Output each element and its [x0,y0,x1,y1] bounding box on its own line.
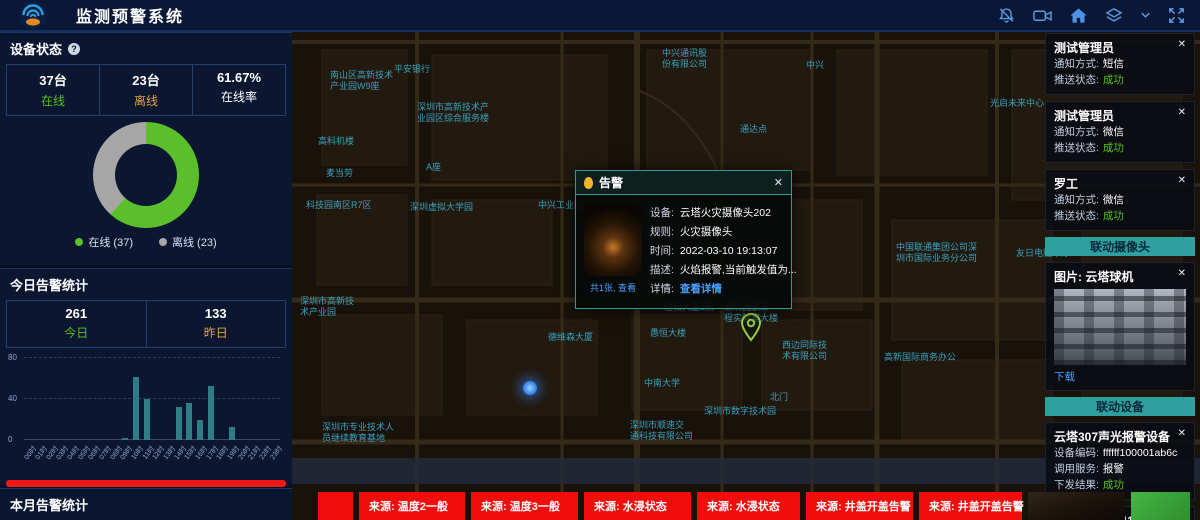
alert-snapshot-image[interactable] [584,204,642,276]
legend-dot-icon [159,238,167,246]
alert-tile[interactable]: 来源: 水浸状态 [584,492,691,520]
close-icon[interactable]: ✕ [1178,268,1186,279]
card-row-value: ffffff100001ab6c [1103,447,1177,459]
alert-popup-body: 共1张, 查看 设备:云塔火灾摄像头202规则:火灾摄像头时间:2022-03-… [576,195,791,308]
stat-value: 61.67% [193,70,285,85]
popup-rows: 设备:云塔火灾摄像头202规则:火灾摄像头时间:2022-03-10 19:13… [650,204,797,299]
stat-value: 261 [7,306,146,321]
card-row-value: 短信 [1103,58,1124,70]
card-row: 通知方式:微信 [1054,125,1186,140]
stat-cell: 23台离线 [99,65,192,115]
stat-label: 今日 [7,324,146,341]
close-icon[interactable]: ✕ [774,176,783,189]
linkage-band-button[interactable]: 联动摄像头 [1045,237,1195,256]
notify-card: 罗工✕通知方式:微信推送状态:成功 [1045,169,1195,231]
notify-card: 测试管理员✕通知方式:微信推送状态:成功 [1045,101,1195,163]
map-place-label: 中国联通集团公司深 圳市国际业务分公司 [896,242,977,264]
map-device-dot-marker[interactable] [523,381,537,395]
bottom-alert-bar: 来源: 温度2一般来源: 温度3一般来源: 水浸状态来源: 水浸状态来源: 井盖… [292,492,1200,520]
card-title: 测试管理员 [1054,107,1114,124]
map-place-label: 高科机楼 [318,136,354,147]
card-title: 云塔307声光报警设备 [1054,428,1170,445]
card-title: 图片: 云塔球机 [1054,268,1133,285]
card-row: 推送状态:成功 [1054,73,1186,88]
alert-tile[interactable]: 来源: 水浸状态 [697,492,800,520]
alert-tile[interactable] [1028,492,1125,520]
bar [197,420,203,441]
map-place-label: 麦当劳 [326,168,353,179]
popup-row-label: 描述: [650,261,674,280]
map-place-label: 中南大学 [644,378,680,389]
alert-tile-label: 来源: 井盖开盖告警 [919,498,1024,514]
map-place-label: 德维森大厦 [548,332,593,343]
alert-tile-label: 来源: 温度2一般 [359,498,448,514]
grid-line [24,357,280,358]
bar [122,438,128,440]
today-alarm-panel: 今日告警统计 261今日133昨日 04080 00时01时02时03时04时0… [0,268,292,485]
download-link[interactable]: 下载 [1054,369,1075,384]
bar [186,403,192,440]
device-donut-chart [93,122,199,228]
close-icon[interactable]: ✕ [1178,107,1186,118]
map-pin-marker[interactable] [739,312,763,345]
map-place-label: 平安银行 [394,64,430,75]
device-status-header: 设备状态 ? [0,33,292,62]
chevron-down-icon[interactable] [1140,10,1151,20]
app-title: 监测预警系统 [76,3,184,27]
alarm-lamp-icon [584,177,593,189]
card-row: 调用服务:报警 [1054,462,1186,477]
stat-cell: 261今日 [7,301,146,347]
alert-feed: 测试管理员✕通知方式:短信推送状态:成功测试管理员✕通知方式:微信推送状态:成功… [1045,33,1195,520]
video-camera-icon[interactable] [1032,6,1053,25]
alert-tile-label: 来源: 温度3一般 [471,498,560,514]
popup-row: 描述:火焰报警,当前触发值为... [650,261,797,280]
stat-cell: 61.67%在线率 [192,65,285,115]
panel-title: 今日告警统计 [10,275,88,294]
close-icon[interactable]: ✕ [1178,39,1186,50]
stat-label: 在线 [7,92,99,109]
panel-title: 设备状态 [10,39,62,58]
y-tick-label: 80 [8,353,17,362]
bar [208,386,214,440]
card-title: 罗工 [1054,175,1078,192]
popup-row-label: 规则: [650,223,674,242]
card-row: 下发结果:成功 [1054,478,1186,493]
close-icon[interactable]: ✕ [1178,428,1186,439]
alert-tile[interactable]: 来源: 井盖开盖告警 [806,492,913,520]
map-place-label: 深圳市高新技 术产业园 [300,296,354,318]
popup-row: 设备:云塔火灾摄像头202 [650,204,797,223]
card-row-value: 成功 [1103,74,1124,86]
alert-tile[interactable] [318,492,353,520]
map-place-label: 北门 [770,392,788,403]
stat-value: 133 [147,306,286,321]
popup-row-value: 2022-03-10 19:13:07 [680,242,778,261]
map-place-label: 深圳市专业技术人 员继续教育基地 [322,422,394,444]
stat-value: 23台 [100,70,192,89]
month-alarm-panel: 本月告警统计 7631146 [0,488,292,520]
notify-card: 测试管理员✕通知方式:短信推送状态:成功 [1045,33,1195,95]
popup-row-value: 火焰报警,当前触发值为... [680,261,797,280]
monitoring-dashboard: 监测预警系统 [0,0,1200,520]
left-sidebar: 设备状态 ? 37台在线23台离线61.67%在线率 在线 (37)离线 (23… [0,32,292,520]
bar [144,399,150,440]
alert-tile-label: 来源: 水浸状态 [584,498,667,514]
card-row-value: 成功 [1103,210,1124,222]
card-row-value: 微信 [1103,194,1124,206]
popup-row: 详情:查看详情 [650,280,797,299]
card-row-value: 微信 [1103,126,1124,138]
alert-tile[interactable]: 来源: 温度2一般 [359,492,465,520]
bar [176,407,182,440]
card-row: 设备编码:ffffff100001ab6c [1054,446,1186,461]
map-place-label: 通达点 [740,124,767,135]
card-row-value: 报警 [1103,463,1124,475]
map-place-label: 科技园南区R7区 [306,200,372,211]
alert-tile[interactable] [1131,492,1190,520]
card-row-label: 推送状态: [1054,74,1099,86]
today-alarm-stats: 261今日133昨日 [6,300,286,348]
bar [229,427,235,440]
card-row-value: 成功 [1103,479,1124,491]
card-row: 推送状态:成功 [1054,209,1186,224]
map-place-label: 深圳市高新技术产 业园区综合服务楼 [417,102,489,124]
map-place-label: 中兴通讯股 份有限公司 [662,48,707,70]
unhandled-progress-bar [6,480,286,487]
camera-snapshot-image[interactable] [1054,289,1186,365]
alert-tile[interactable]: 来源: 井盖开盖告警 [919,492,1022,520]
alert-tile-label: 来源: 水浸状态 [697,498,780,514]
alert-tile[interactable]: 来源: 温度3一般 [471,492,578,520]
card-title: 测试管理员 [1054,39,1114,56]
legend-item: 在线 (37) [75,234,133,250]
map-place-label: 高新国际商务办公 [884,352,956,363]
map-place-label: 深圳市顺速交 通科技有限公司 [630,420,693,442]
map-place-label: 中兴 [806,60,824,71]
stat-label: 在线率 [193,88,285,105]
stat-value: 37台 [7,70,99,89]
map-place-label: 深圳市数字技术园 [704,406,776,417]
map-place-label: 西边同际技 术有限公司 [782,340,827,362]
view-detail-link[interactable]: 查看详情 [680,280,722,299]
popup-row-value: 云塔火灾摄像头202 [680,204,771,223]
card-row: 推送状态:成功 [1054,141,1186,156]
popup-row-value: 火灾摄像头 [680,223,733,242]
panel-title: 本月告警统计 [10,495,88,514]
legend-item: 离线 (23) [159,234,217,250]
fullscreen-icon[interactable] [1167,6,1186,25]
map-place-label: 光启未来中心 [990,98,1044,109]
today-chart-plot: 04080 [6,358,282,440]
map-place-label: 深圳虚拟大学园 [410,202,473,213]
close-icon[interactable]: ✕ [1178,175,1186,186]
stat-label: 昨日 [147,324,286,341]
grid-line [24,439,280,440]
help-icon[interactable]: ? [68,43,80,55]
stat-cell: 37台在线 [7,65,99,115]
card-row-label: 通知方式: [1054,126,1099,138]
popup-row-label: 详情: [650,280,674,299]
popup-row: 时间:2022-03-10 19:13:07 [650,242,797,261]
card-row-label: 调用服务: [1054,463,1099,475]
image-card-card: 图片: 云塔球机✕下载 [1045,262,1195,391]
alert-popup: 告警 ✕ 共1张, 查看 设备:云塔火灾摄像头202规则:火灾摄像头时间:202… [575,170,792,309]
y-tick-label: 40 [8,394,17,403]
bar [133,377,139,440]
today-alarm-header: 今日告警统计 [0,269,292,298]
app-logo-icon [18,0,48,30]
card-row-label: 下发结果: [1054,479,1099,491]
layers-icon[interactable] [1104,6,1124,25]
map-place-label: A座 [426,162,441,173]
home-icon[interactable] [1069,6,1088,25]
today-alarm-chart: 04080 00时01时02时03时04时05时06时07时08时09时10时1… [6,354,286,472]
legend-label: 离线 (23) [172,234,217,250]
today-chart-xlabels: 00时01时02时03时04时05时06时07时08时09时10时11时12时1… [6,442,282,472]
month-alarm-header: 本月告警统计 [0,489,292,518]
top-header: 监测预警系统 [0,0,1200,32]
card-row-value: 成功 [1103,142,1124,154]
popup-title: 告警 [599,174,623,191]
popup-row-label: 设备: [650,204,674,223]
device-donut-legend: 在线 (37)离线 (23) [0,234,292,250]
alert-popup-header[interactable]: 告警 ✕ [576,171,791,195]
alert-tile-label: 来源: 井盖开盖告警 [806,498,911,514]
header-icon-group [997,6,1186,25]
card-row-label: 推送状态: [1054,142,1099,154]
card-row-label: 推送状态: [1054,210,1099,222]
view-images-link[interactable]: 共1张, 查看 [584,281,642,294]
legend-label: 在线 (37) [88,234,133,250]
card-row-label: 通知方式: [1054,194,1099,206]
donut-hole [115,144,177,206]
stat-label: 离线 [100,92,192,109]
card-row-label: 设备编码: [1054,447,1099,459]
map-place-label: 南山区高新技术 产业园W9座 [330,70,393,92]
linkage-band-button[interactable]: 联动设备 [1045,397,1195,416]
legend-dot-icon [75,238,83,246]
popup-row-label: 时间: [650,242,674,261]
notifications-muted-icon[interactable] [997,6,1016,25]
grid-line [24,398,280,399]
device-status-stats: 37台在线23台离线61.67%在线率 [6,64,286,116]
card-row-label: 通知方式: [1054,58,1099,70]
stat-cell: 133昨日 [146,301,286,347]
popup-row: 规则:火灾摄像头 [650,223,797,242]
device-card: 云塔307声光报警设备✕设备编码:ffffff100001ab6c调用服务:报警… [1045,422,1195,500]
map-place-label: 愚恒大楼 [650,328,686,339]
card-row: 通知方式:短信 [1054,57,1186,72]
device-status-panel: 设备状态 ? 37台在线23台离线61.67%在线率 在线 (37)离线 (23… [0,32,292,265]
card-row: 通知方式:微信 [1054,193,1186,208]
